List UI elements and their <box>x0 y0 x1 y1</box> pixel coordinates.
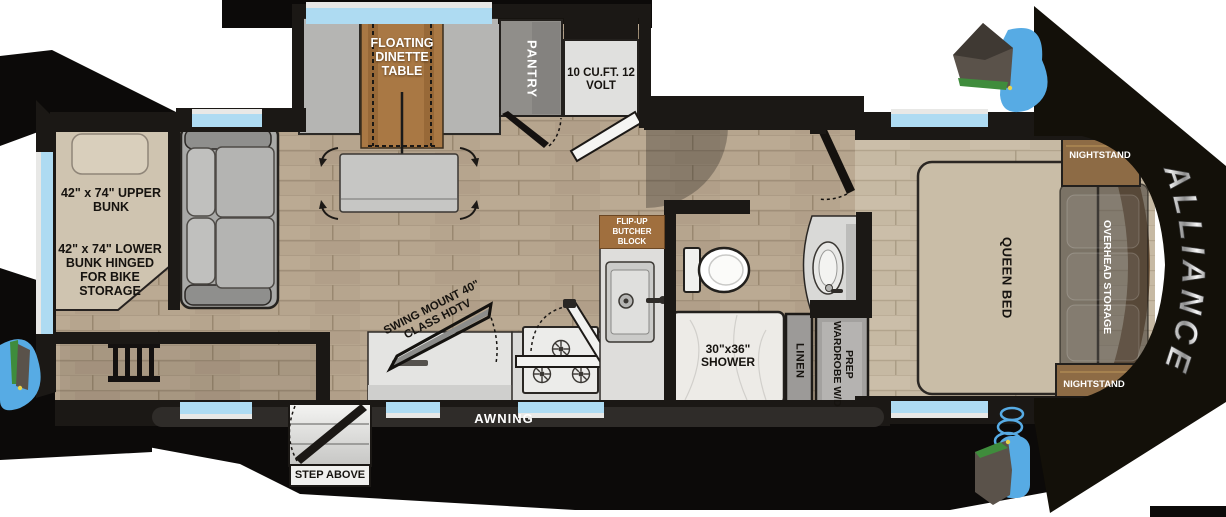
stove-window <box>518 402 604 413</box>
dinette-bench-right <box>442 18 500 134</box>
bunk-pillow <box>72 134 148 174</box>
flip-up-counter <box>516 356 609 367</box>
entry-steps <box>289 404 371 466</box>
toilet-tank <box>684 248 700 292</box>
bunk-beds <box>52 124 170 310</box>
bedroom-bottom-window <box>891 401 988 413</box>
ottoman <box>319 148 479 219</box>
linen-closet <box>786 314 812 406</box>
dinette-bench-left <box>299 18 360 134</box>
floorplan-canvas: ALLIANCE <box>0 0 1226 517</box>
refrigerator <box>564 40 638 116</box>
bay-window <box>180 402 252 414</box>
tv-window <box>386 402 440 413</box>
kitchen-sink-peninsula <box>600 244 668 420</box>
splash-top-right <box>953 23 1048 112</box>
shower <box>672 312 784 404</box>
sofa-window <box>192 114 262 127</box>
sofa <box>181 126 278 308</box>
bedroom-top-window <box>891 114 988 127</box>
rear-window <box>41 152 53 334</box>
rv-floorplan: ALLIANCE FLOATING DINETTE TABLE PANTRY 1… <box>0 0 1226 517</box>
slide-window <box>306 8 492 24</box>
bedroom-furniture <box>918 136 1150 404</box>
